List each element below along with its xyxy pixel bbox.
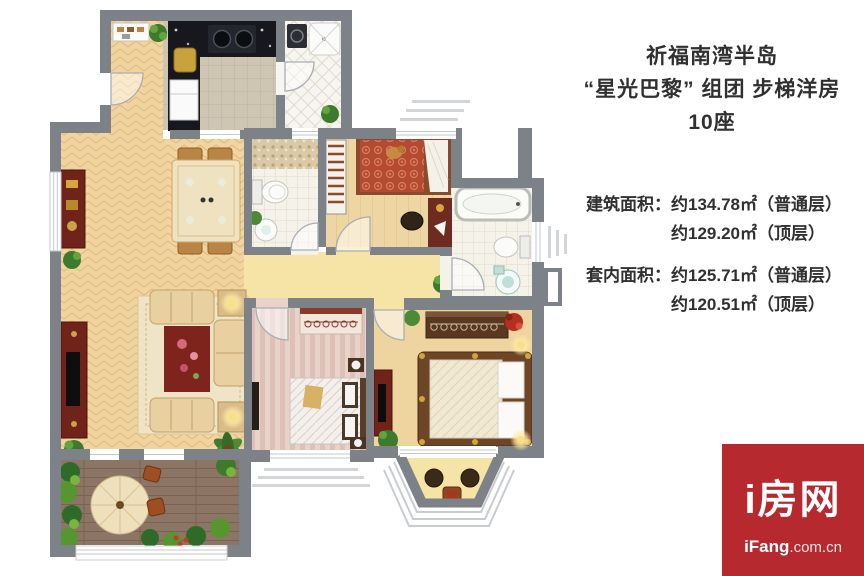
- toilet-tank: [252, 180, 262, 204]
- sofa-bottom: [150, 398, 214, 432]
- logo-domain: iFang.com.cn: [722, 537, 864, 557]
- inner-area-row: 套内面积： 约125.71㎡（普通层） 约120.51㎡（顶层）: [586, 261, 842, 319]
- logo-domain-bold: iFang: [744, 537, 789, 556]
- toilet: [494, 237, 518, 257]
- building-area-normal: 约134.78㎡（普通层）: [671, 190, 842, 219]
- wall-tv: [252, 382, 259, 430]
- title-line-1: 祈福南湾半岛: [560, 40, 864, 73]
- window-bathroom-right: [532, 222, 567, 262]
- property-title: 祈福南湾半岛 “星光巴黎” 组团 步梯洋房 10座: [560, 40, 864, 139]
- coffee-rug: [164, 326, 210, 392]
- bay-chair: [461, 469, 479, 487]
- floor-plan: [0, 0, 580, 576]
- kitchen-pass: [200, 130, 240, 139]
- sofa-top: [150, 290, 214, 324]
- building-area-label: 建筑面积：: [586, 190, 671, 219]
- inner-area-top: 约120.51㎡（顶层）: [671, 290, 842, 319]
- headboard: [360, 378, 367, 444]
- building-area-row: 建筑面积： 约134.78㎡（普通层） 约129.20㎡（顶层）: [586, 190, 842, 248]
- toilet: [262, 181, 288, 203]
- inner-area-normal: 约125.71㎡（普通层）: [671, 261, 842, 290]
- title-line-2: “星光巴黎” 组团 步梯洋房: [560, 73, 864, 106]
- tv-cabinet: [61, 322, 87, 438]
- window-bathroom-middle: [292, 128, 318, 139]
- hallway-floor: [244, 252, 440, 298]
- entry-opening: [100, 73, 111, 105]
- title-line-3: 10座: [560, 106, 864, 139]
- washing-machine: [287, 24, 307, 48]
- fridge: [170, 80, 198, 120]
- area-info: 建筑面积： 约134.78㎡（普通层） 约129.20㎡（顶层） 套内面积： 约…: [586, 190, 842, 319]
- terrace-chair: [147, 498, 166, 517]
- door-plant: [404, 310, 420, 326]
- toilet-tank: [520, 236, 530, 258]
- tv: [66, 352, 80, 406]
- page: 祈福南湾半岛 “星光巴黎” 组团 步梯洋房 10座 建筑面积： 约134.78㎡…: [0, 0, 864, 576]
- inner-area-label: 套内面积：: [586, 261, 671, 290]
- bed-master-mattress: [430, 360, 502, 438]
- window-living-left: [50, 172, 61, 251]
- ifang-logo: i房网 iFang.com.cn: [722, 444, 864, 576]
- entry-hall: [113, 23, 167, 42]
- umbrella-table: [91, 476, 149, 534]
- logo-name: i房网: [722, 467, 864, 525]
- bay-chair: [425, 469, 443, 487]
- desk-chair: [401, 212, 423, 230]
- logo-domain-rest: .com.cn: [789, 539, 842, 556]
- dining-table: [172, 160, 240, 242]
- kitchen-sink: [174, 48, 196, 72]
- building-area-top: 约129.20㎡（顶层）: [671, 219, 842, 248]
- dining-set: [172, 148, 240, 254]
- terrace-balustrade: [76, 546, 227, 560]
- vanity: [252, 137, 318, 169]
